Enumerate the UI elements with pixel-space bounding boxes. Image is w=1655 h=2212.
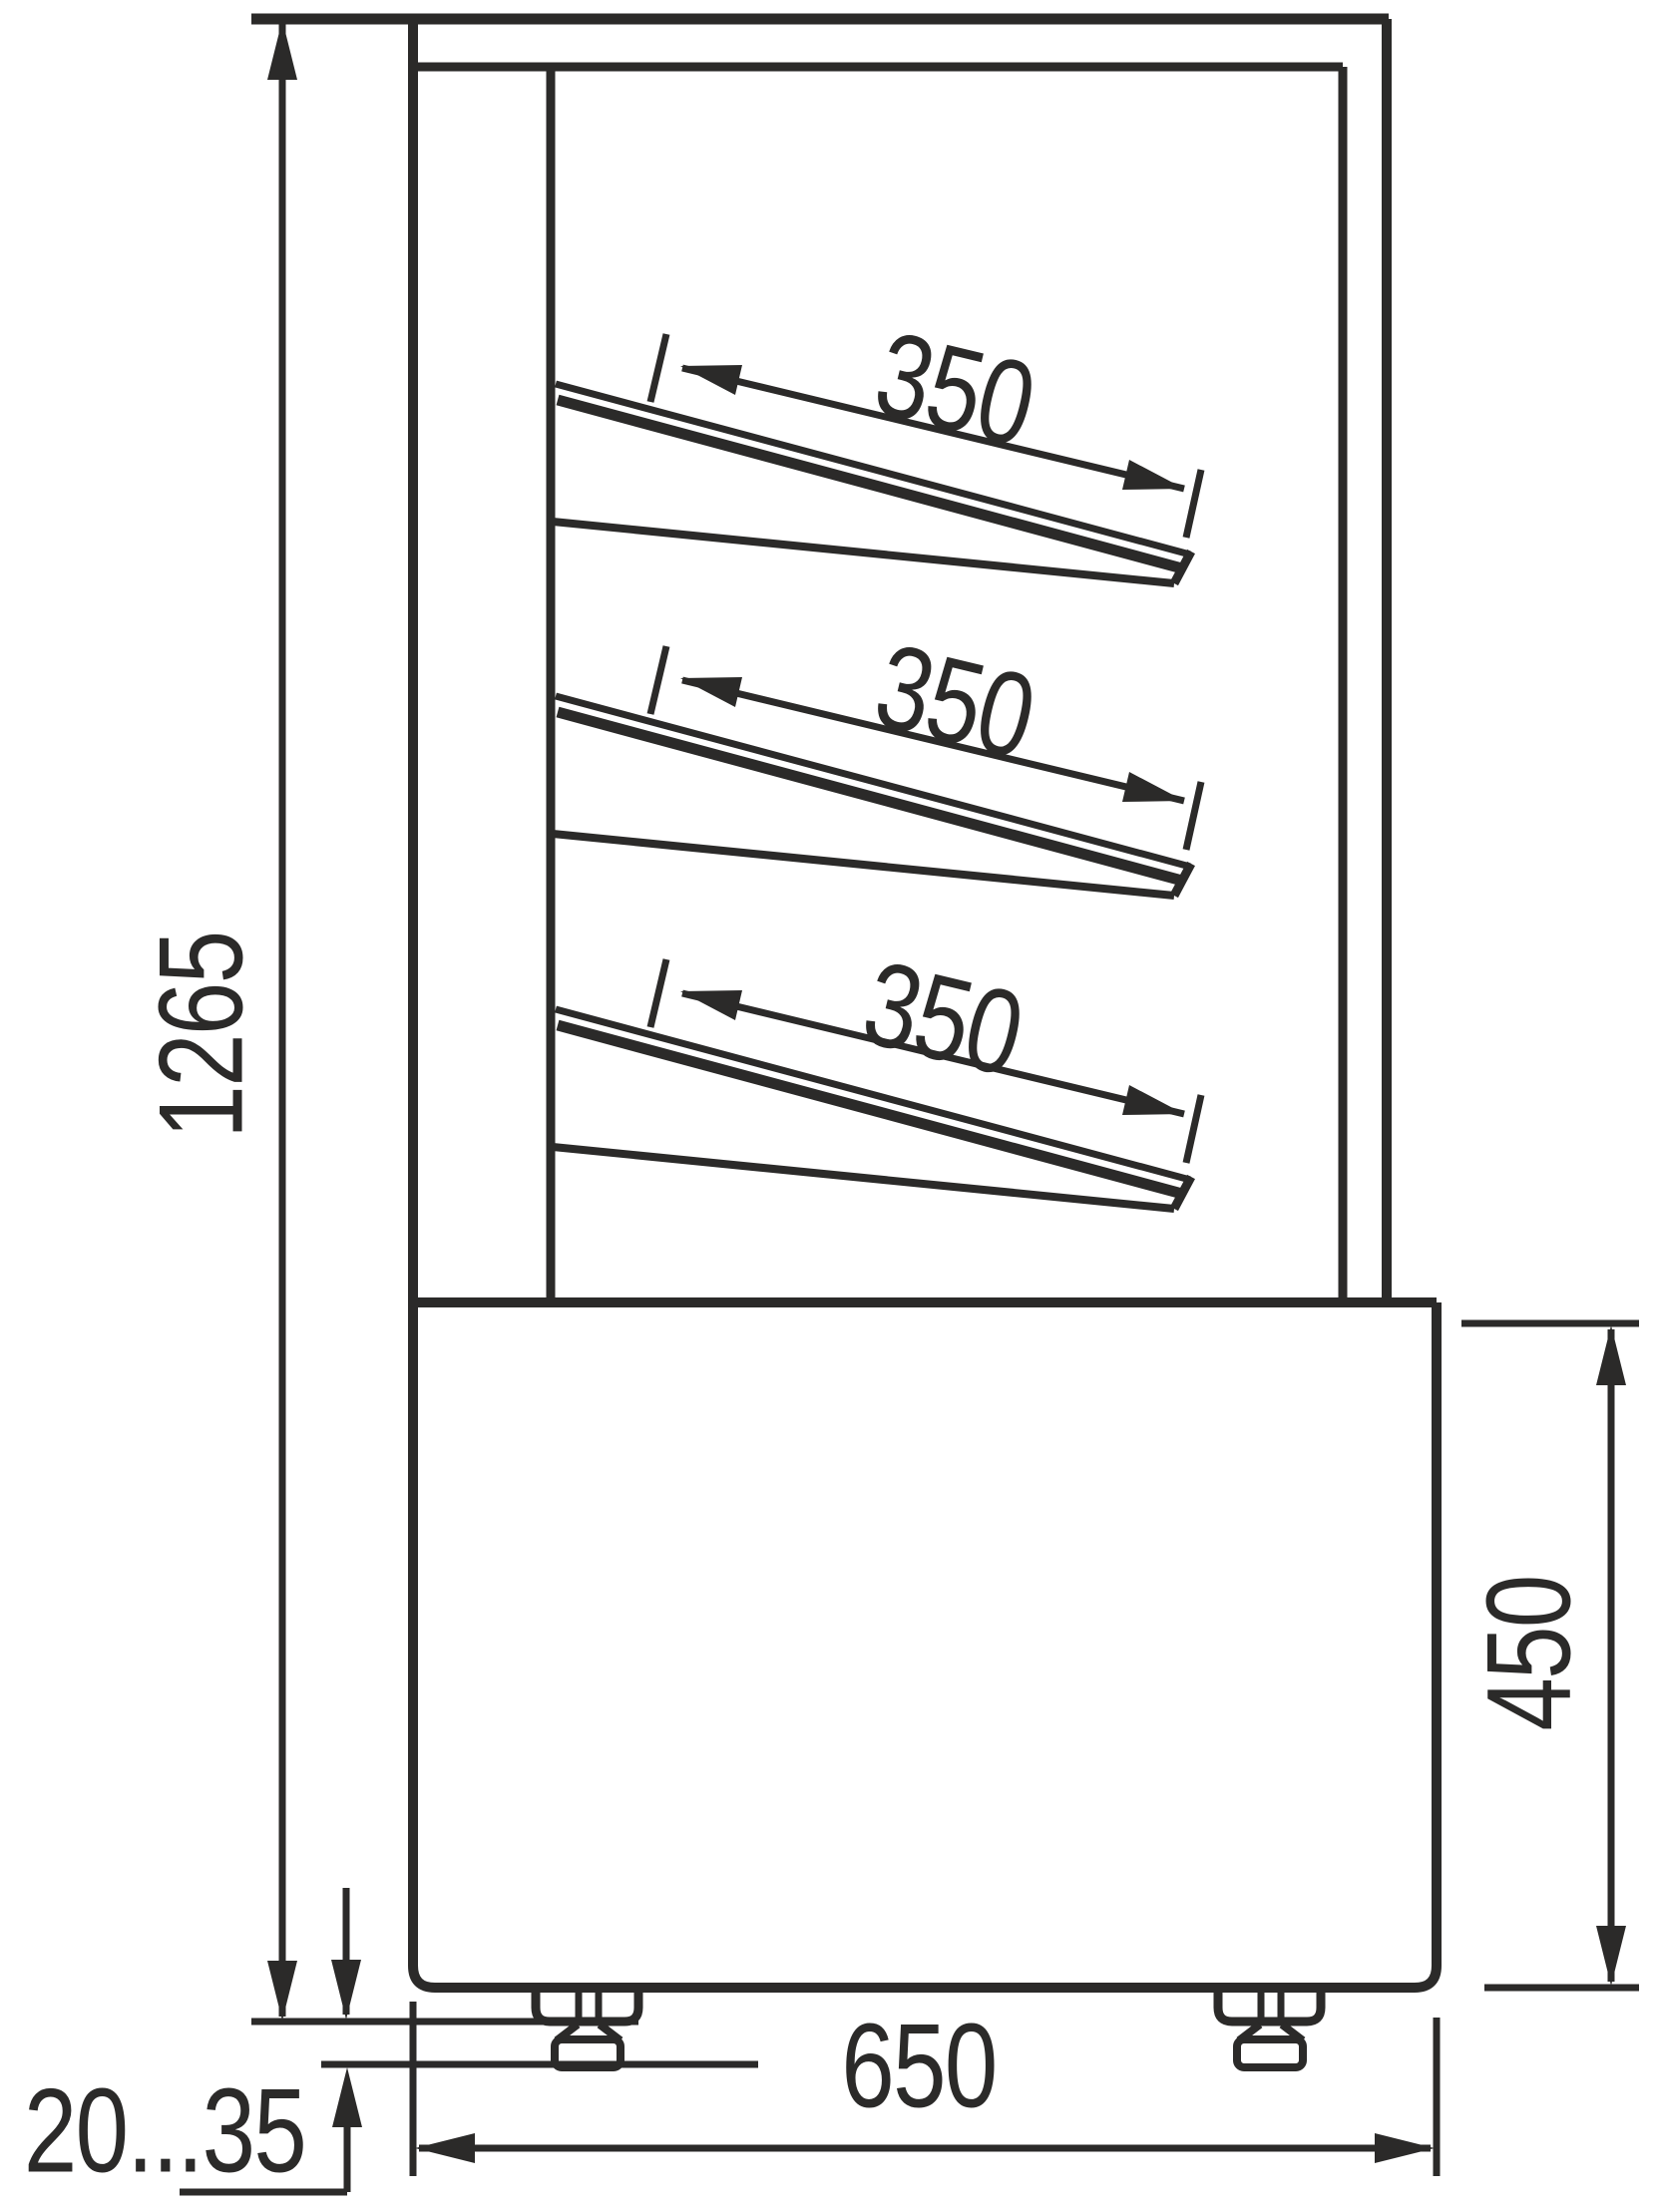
- display-case-dimension-drawing: 350 350 350: [0, 0, 1655, 2212]
- drawing-page: 350 350 350: [0, 0, 1655, 2212]
- overall-height-label: 1265: [135, 931, 268, 1138]
- base-depth-label: 650: [841, 2000, 996, 2133]
- foot-adjustment-label: 20...35: [24, 2064, 305, 2198]
- base-height-label: 450: [1462, 1576, 1596, 1730]
